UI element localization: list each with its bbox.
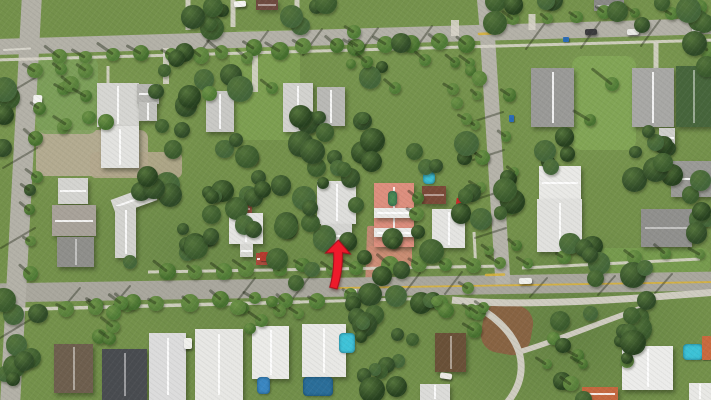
tree-canopy bbox=[504, 0, 523, 15]
palm-shadow bbox=[55, 302, 67, 310]
palm-shadow bbox=[24, 167, 38, 178]
tree-canopy bbox=[357, 112, 369, 124]
tree-canopy bbox=[202, 205, 221, 224]
tree-canopy bbox=[575, 391, 591, 400]
palm-shadow bbox=[457, 281, 469, 290]
tree-canopy bbox=[692, 202, 711, 221]
tree-canopy bbox=[123, 255, 137, 269]
tree-canopy bbox=[419, 54, 431, 66]
palm-shadow bbox=[259, 78, 273, 90]
tree-canopy bbox=[356, 316, 370, 330]
tree-canopy bbox=[653, 153, 672, 172]
tree-canopy bbox=[560, 146, 576, 162]
arrow-up-icon bbox=[323, 239, 352, 292]
tree-canopy bbox=[461, 113, 472, 124]
tree-canopy bbox=[587, 270, 604, 287]
tree-canopy bbox=[14, 351, 34, 371]
palm-shadow bbox=[496, 129, 507, 138]
palm-shadow bbox=[21, 236, 31, 243]
tree-canopy bbox=[386, 376, 407, 397]
palm-shadow bbox=[75, 63, 86, 72]
tree-canopy bbox=[470, 208, 492, 230]
tree-canopy bbox=[389, 82, 401, 94]
tree-canopy bbox=[450, 57, 460, 67]
tree-canopy bbox=[33, 102, 46, 115]
tree-canopy bbox=[155, 119, 169, 133]
tree-canopy bbox=[503, 88, 517, 102]
palm-shadow bbox=[52, 115, 67, 126]
palm-shadow bbox=[22, 127, 36, 140]
tree-canopy bbox=[158, 64, 171, 77]
palm-shadow bbox=[459, 257, 474, 267]
tree-canopy bbox=[451, 97, 463, 109]
tree-canopy bbox=[230, 300, 246, 316]
tree-canopy bbox=[550, 311, 570, 331]
palm-shadow bbox=[19, 182, 31, 191]
tree-canopy bbox=[686, 222, 708, 244]
palm-shadow bbox=[444, 54, 456, 65]
tree-canopy bbox=[174, 122, 190, 138]
palm-shadow bbox=[208, 289, 221, 301]
tree-canopy bbox=[360, 128, 385, 153]
tree-canopy bbox=[359, 377, 385, 400]
tree-canopy bbox=[181, 294, 199, 312]
tree-canopy bbox=[106, 48, 120, 62]
palm-shadow bbox=[515, 255, 529, 265]
tree-canopy bbox=[202, 86, 217, 101]
tree-canopy bbox=[181, 5, 205, 29]
palm-shadow bbox=[594, 4, 605, 13]
palm-shadow bbox=[96, 42, 114, 56]
palm-shadow bbox=[292, 259, 303, 267]
tree-canopy bbox=[241, 52, 253, 64]
palm-shadow bbox=[455, 35, 467, 46]
tree-canopy bbox=[23, 266, 38, 281]
tree-canopy bbox=[406, 143, 423, 160]
location-arrow-marker bbox=[323, 239, 352, 292]
palm-shadow bbox=[480, 244, 490, 253]
palm-shadow bbox=[469, 89, 478, 97]
tree-canopy bbox=[216, 263, 232, 279]
palm-shadow bbox=[22, 62, 36, 73]
palm-shadow bbox=[457, 113, 468, 121]
tree-canopy bbox=[302, 200, 318, 216]
tree-canopy bbox=[637, 291, 656, 310]
palm-shadow bbox=[210, 261, 225, 273]
tree-canopy bbox=[79, 51, 92, 64]
palm-shadow bbox=[231, 258, 247, 270]
tree-canopy bbox=[106, 320, 119, 333]
palm-shadow bbox=[535, 356, 548, 366]
tree-canopy bbox=[447, 83, 459, 95]
tree-canopy bbox=[570, 11, 582, 23]
tree-canopy bbox=[245, 221, 262, 238]
tree-canopy bbox=[543, 159, 559, 175]
tree-canopy bbox=[274, 215, 298, 239]
tree-canopy bbox=[660, 248, 670, 258]
tree-canopy bbox=[358, 283, 381, 306]
tree-canopy bbox=[431, 33, 448, 50]
tree-canopy bbox=[555, 127, 574, 146]
palm-shadow bbox=[43, 44, 60, 58]
tree-canopy bbox=[563, 376, 578, 391]
tree-canopy bbox=[55, 63, 67, 75]
tree-canopy bbox=[254, 181, 271, 198]
tree-canopy bbox=[193, 47, 209, 63]
tree-canopy bbox=[462, 282, 474, 294]
arrow-shape bbox=[324, 240, 351, 290]
tree-canopy bbox=[696, 56, 711, 77]
tree-canopy bbox=[266, 82, 278, 94]
tree-layer bbox=[0, 0, 711, 400]
tree-canopy bbox=[215, 45, 229, 59]
tree-canopy bbox=[391, 328, 404, 341]
tree-canopy bbox=[642, 125, 655, 138]
tree-canopy bbox=[80, 90, 92, 102]
tree-canopy bbox=[159, 263, 175, 279]
tree-canopy bbox=[227, 76, 252, 101]
palm-shadow bbox=[507, 238, 517, 247]
tree-canopy bbox=[168, 50, 186, 68]
tree-canopy bbox=[682, 31, 707, 56]
tree-canopy bbox=[103, 332, 116, 345]
tree-canopy bbox=[31, 171, 43, 183]
palm-shadow bbox=[539, 12, 548, 20]
tree-canopy bbox=[466, 258, 481, 273]
tree-canopy bbox=[634, 17, 650, 33]
tree-canopy bbox=[467, 322, 482, 337]
tree-canopy bbox=[393, 261, 411, 279]
tree-canopy bbox=[205, 190, 219, 204]
tree-canopy bbox=[695, 249, 706, 260]
palm-shadow bbox=[291, 38, 304, 47]
tree-canopy bbox=[288, 275, 304, 291]
tree-canopy bbox=[451, 203, 472, 224]
palm-shadow bbox=[499, 88, 511, 97]
tree-canopy bbox=[235, 145, 258, 168]
tree-canopy bbox=[429, 159, 443, 173]
palm-shadow bbox=[653, 243, 667, 255]
palm-shadow bbox=[126, 44, 142, 55]
tree-canopy bbox=[106, 305, 121, 320]
palm-shadow bbox=[468, 305, 479, 314]
tree-canopy bbox=[98, 114, 114, 130]
tree-canopy bbox=[478, 302, 489, 313]
tree-canopy bbox=[493, 178, 517, 202]
tree-canopy bbox=[578, 359, 588, 369]
palm-shadow bbox=[407, 189, 419, 200]
palm-shadow bbox=[186, 264, 196, 274]
tree-canopy bbox=[483, 11, 507, 35]
palm-shadow bbox=[71, 48, 86, 59]
tree-canopy bbox=[229, 133, 243, 147]
tree-canopy bbox=[391, 33, 411, 53]
tree-canopy bbox=[542, 359, 552, 369]
palm-shadow bbox=[343, 25, 355, 34]
palm-shadow bbox=[85, 299, 96, 309]
tree-canopy bbox=[361, 151, 383, 173]
tree-canopy bbox=[438, 303, 454, 319]
tree-canopy bbox=[494, 206, 508, 220]
tree-canopy bbox=[24, 204, 35, 215]
palm-shadow bbox=[18, 263, 31, 275]
tree-canopy bbox=[316, 123, 335, 142]
tree-canopy bbox=[630, 8, 640, 18]
palm-shadow bbox=[263, 41, 280, 53]
tree-canopy bbox=[178, 85, 201, 108]
tree-canopy bbox=[271, 42, 289, 60]
tree-canopy bbox=[24, 184, 36, 196]
tree-canopy bbox=[348, 197, 364, 213]
tree-canopy bbox=[337, 162, 351, 176]
tree-canopy bbox=[317, 177, 329, 189]
tree-canopy bbox=[542, 13, 553, 24]
palm-shadow bbox=[572, 109, 591, 122]
palm-shadow bbox=[383, 78, 396, 90]
palm-shadow bbox=[405, 207, 418, 216]
tree-canopy bbox=[244, 323, 256, 335]
tree-canopy bbox=[212, 291, 229, 308]
palm-shadow bbox=[288, 307, 299, 315]
tree-canopy bbox=[620, 330, 645, 355]
tree-canopy bbox=[605, 77, 619, 91]
aerial-photo bbox=[0, 0, 711, 400]
tree-canopy bbox=[409, 207, 423, 221]
palm-shadow bbox=[371, 35, 386, 46]
tree-canopy bbox=[304, 262, 319, 277]
tree-canopy bbox=[300, 139, 325, 164]
tree-canopy bbox=[25, 236, 35, 246]
tree-canopy bbox=[255, 314, 268, 327]
palm-shadow bbox=[241, 39, 254, 49]
palm-shadow bbox=[413, 50, 426, 61]
tree-canopy bbox=[271, 175, 291, 195]
tree-canopy bbox=[346, 59, 356, 69]
tree-canopy bbox=[60, 118, 72, 130]
tree-canopy bbox=[6, 372, 19, 385]
palm-shadow bbox=[18, 200, 30, 211]
tree-canopy bbox=[412, 192, 424, 204]
tree-canopy bbox=[88, 300, 103, 315]
tree-canopy bbox=[584, 114, 596, 126]
tree-canopy bbox=[301, 214, 320, 233]
tree-canopy bbox=[203, 228, 220, 245]
palm-shadow bbox=[687, 246, 701, 255]
tree-canopy bbox=[133, 45, 149, 61]
tree-canopy bbox=[0, 139, 12, 157]
tree-canopy bbox=[148, 84, 163, 99]
palm-shadow bbox=[29, 101, 40, 110]
tree-canopy bbox=[607, 1, 628, 22]
tree-canopy bbox=[475, 150, 490, 165]
tree-canopy bbox=[266, 248, 288, 270]
tree-canopy bbox=[28, 131, 43, 146]
tree-canopy bbox=[357, 250, 372, 265]
palm-shadow bbox=[242, 290, 255, 299]
tree-canopy bbox=[249, 292, 261, 304]
palm-shadow bbox=[247, 310, 262, 321]
tree-canopy bbox=[238, 261, 254, 277]
tree-canopy bbox=[177, 223, 189, 235]
tree-canopy bbox=[511, 240, 522, 251]
tree-canopy bbox=[494, 257, 506, 269]
tree-canopy bbox=[501, 131, 511, 141]
tree-canopy bbox=[458, 35, 476, 53]
tree-canopy bbox=[388, 237, 400, 249]
tree-canopy bbox=[431, 296, 442, 307]
tree-canopy bbox=[27, 63, 42, 78]
palm-shadow bbox=[485, 254, 501, 265]
tree-canopy bbox=[472, 91, 482, 101]
tree-canopy bbox=[280, 5, 303, 28]
palm-shadow bbox=[376, 253, 391, 267]
tree-canopy bbox=[637, 260, 653, 276]
tree-canopy bbox=[164, 140, 182, 158]
tree-canopy bbox=[188, 265, 203, 280]
tree-canopy bbox=[385, 285, 407, 307]
tree-canopy bbox=[82, 111, 95, 124]
tree-canopy bbox=[355, 330, 368, 343]
tree-canopy bbox=[690, 170, 710, 190]
tree-canopy bbox=[293, 308, 304, 319]
tree-canopy bbox=[315, 0, 336, 14]
palm-shadow bbox=[567, 11, 577, 19]
tree-canopy bbox=[629, 146, 642, 159]
palm-shadow bbox=[407, 257, 419, 266]
tree-canopy bbox=[295, 38, 311, 54]
palm-shadow bbox=[147, 298, 157, 306]
tree-canopy bbox=[359, 66, 381, 88]
palm-shadow bbox=[623, 249, 635, 259]
palm-shadow bbox=[591, 67, 613, 85]
tree-canopy bbox=[309, 293, 325, 309]
tree-canopy bbox=[583, 306, 598, 321]
palm-shadow bbox=[462, 322, 476, 332]
tree-canopy bbox=[406, 333, 419, 346]
palm-shadow bbox=[71, 87, 86, 98]
palm-shadow bbox=[152, 259, 168, 272]
tree-canopy bbox=[411, 225, 425, 239]
tree-canopy bbox=[78, 63, 92, 77]
tree-canopy bbox=[458, 188, 474, 204]
tree-canopy bbox=[148, 296, 164, 312]
tree-canopy bbox=[484, 246, 494, 256]
tree-canopy bbox=[28, 304, 47, 323]
palm-shadow bbox=[442, 82, 454, 91]
tree-canopy bbox=[361, 56, 373, 68]
tree-canopy bbox=[472, 71, 486, 85]
palm-shadow bbox=[181, 295, 191, 305]
palm-shadow bbox=[324, 35, 338, 47]
tree-canopy bbox=[347, 25, 361, 39]
palm-shadow bbox=[427, 32, 440, 43]
tree-canopy bbox=[523, 258, 533, 268]
palm-shadow bbox=[307, 295, 318, 303]
tree-canopy bbox=[58, 301, 74, 317]
